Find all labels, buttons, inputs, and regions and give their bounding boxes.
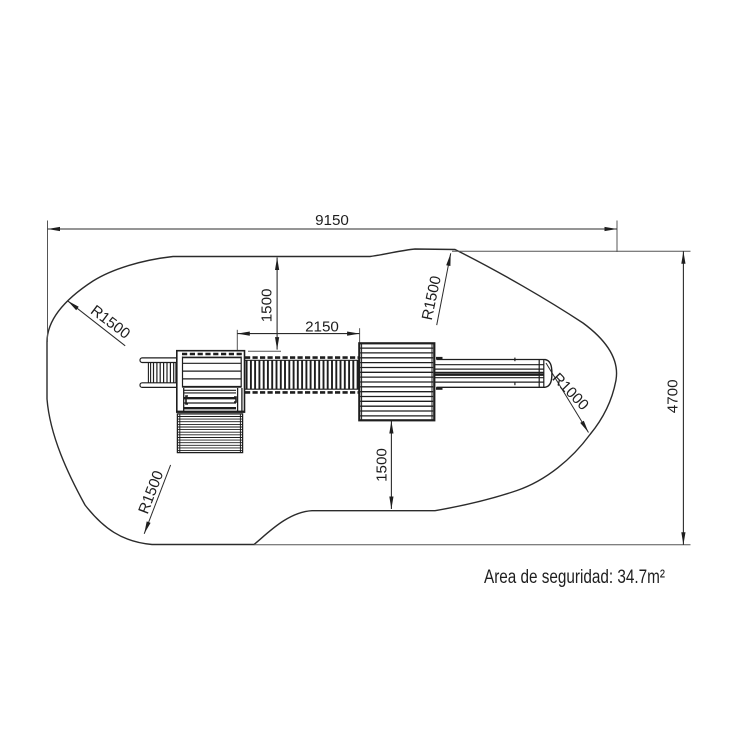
svg-text:2150: 2150: [305, 319, 339, 336]
svg-text:1500: 1500: [259, 289, 276, 323]
svg-text:Area de seguridad: 34.7m²: Area de seguridad: 34.7m²: [484, 567, 665, 588]
svg-text:4700: 4700: [665, 379, 682, 413]
svg-text:9150: 9150: [315, 212, 349, 229]
svg-text:1500: 1500: [374, 448, 391, 482]
